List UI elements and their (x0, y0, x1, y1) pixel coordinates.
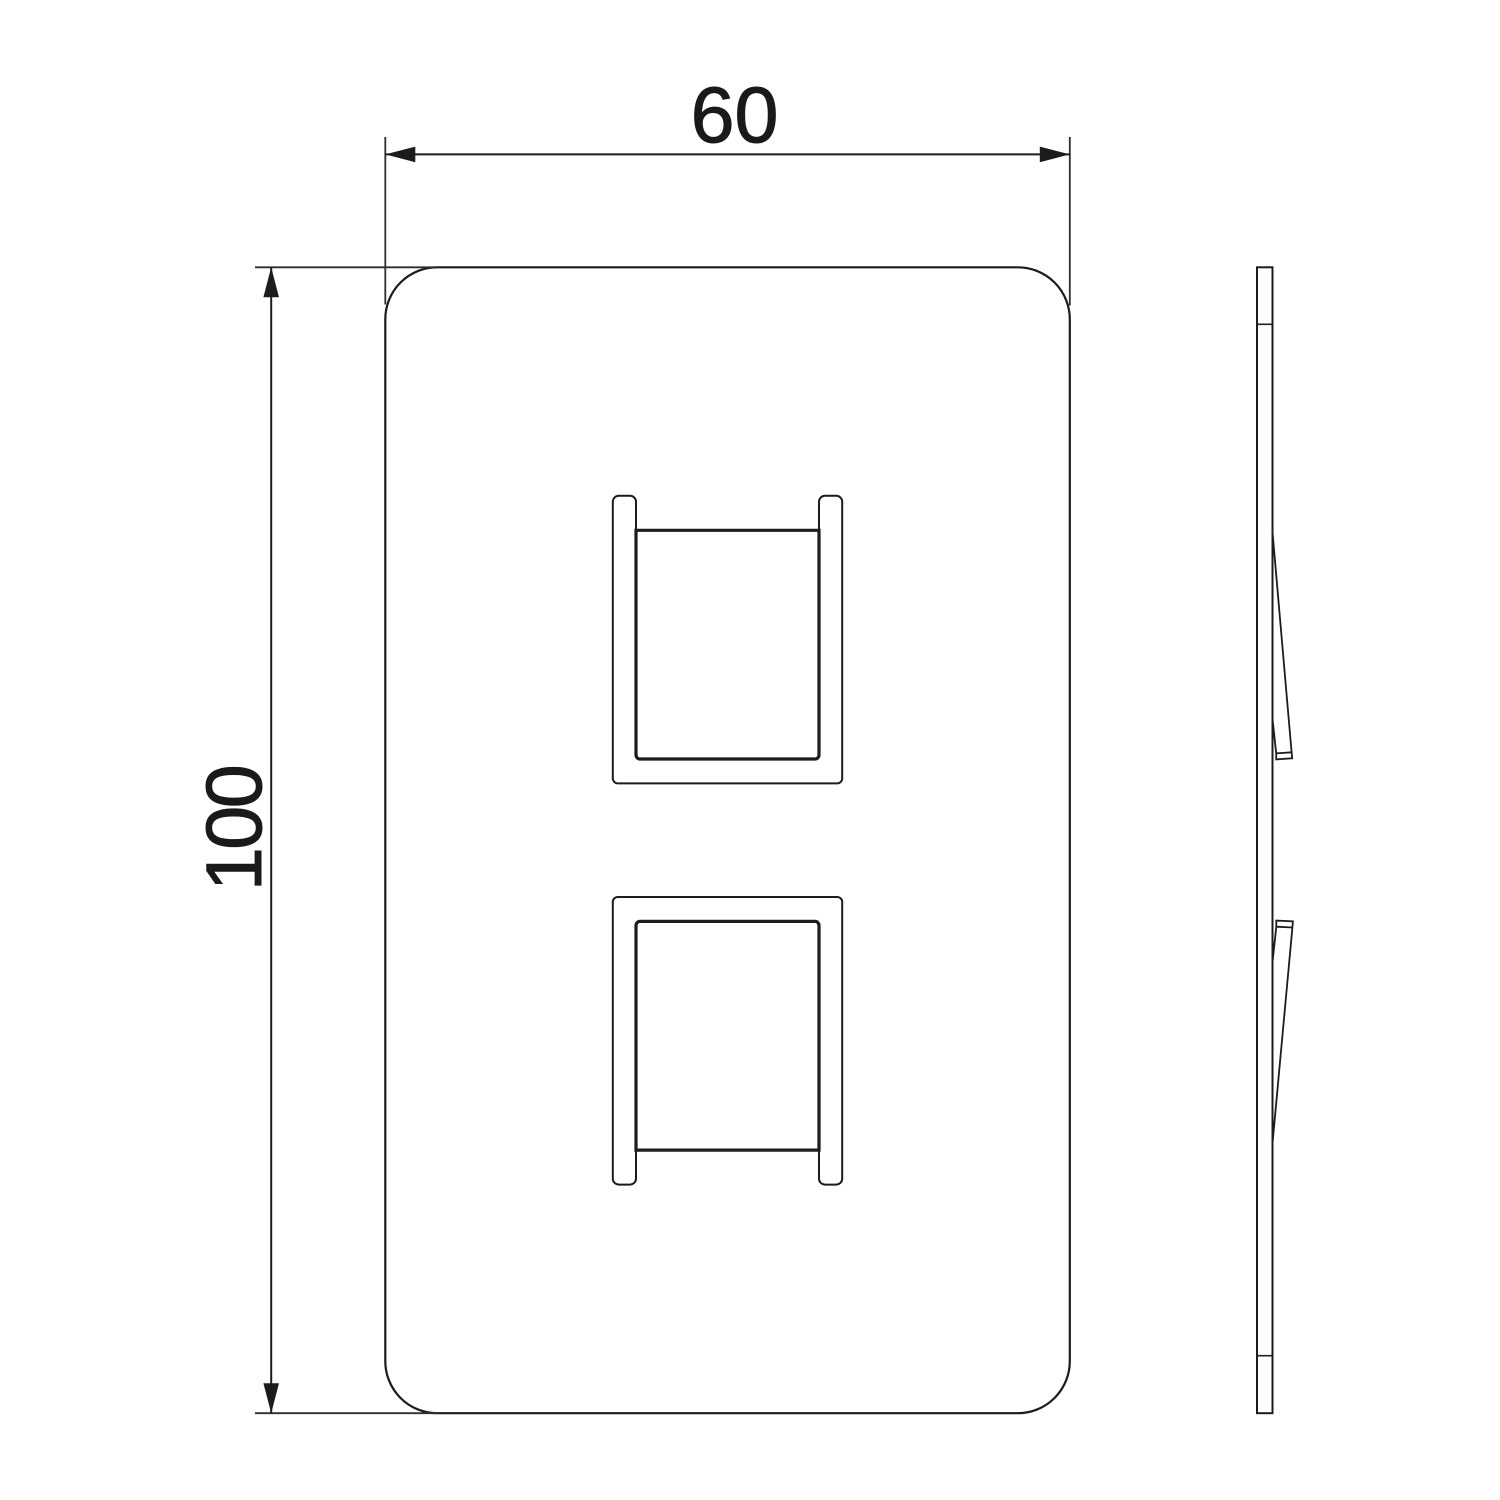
svg-text:100: 100 (189, 767, 278, 891)
svg-text:60: 60 (691, 70, 779, 159)
